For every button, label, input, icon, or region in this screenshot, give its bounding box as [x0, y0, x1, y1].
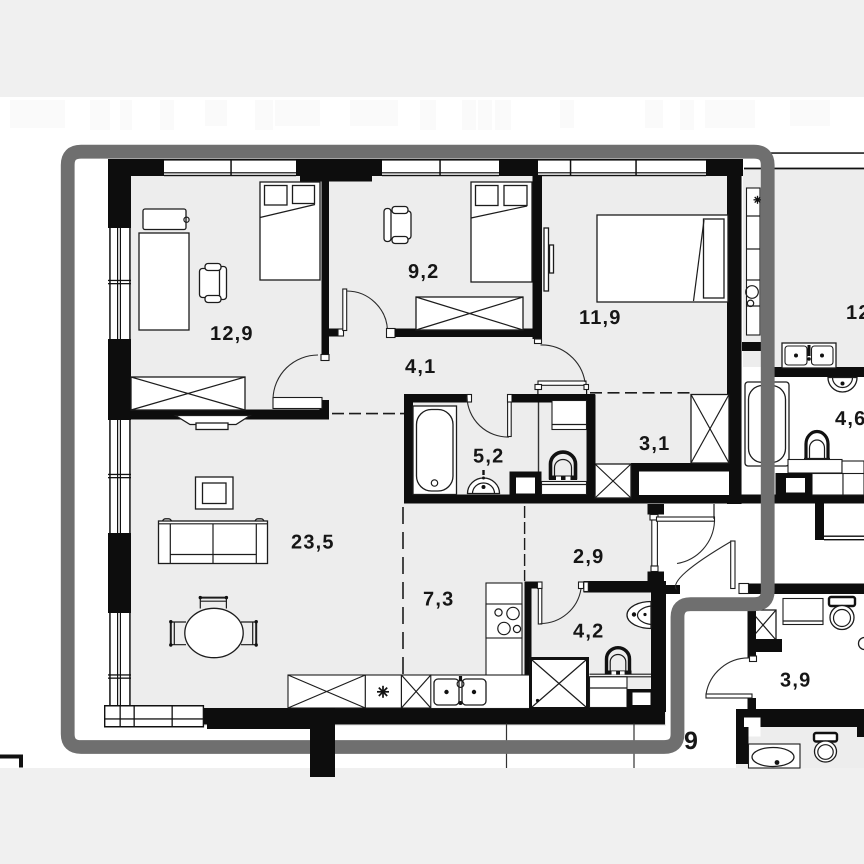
svg-text:23,5: 23,5: [291, 532, 335, 554]
svg-text:7,3: 7,3: [423, 589, 454, 611]
svg-text:9: 9: [684, 727, 699, 755]
svg-text:4,6: 4,6: [835, 408, 864, 430]
svg-text:9,2: 9,2: [408, 261, 439, 283]
svg-text:3,9: 3,9: [780, 670, 811, 692]
svg-text:4,1: 4,1: [405, 356, 436, 378]
svg-text:3,1: 3,1: [639, 433, 670, 455]
svg-text:12,9: 12,9: [210, 323, 254, 345]
svg-text:4,2: 4,2: [573, 621, 604, 643]
svg-text:12,: 12,: [846, 302, 864, 324]
svg-text:5,2: 5,2: [473, 446, 504, 468]
svg-text:2,9: 2,9: [573, 546, 604, 568]
svg-text:11,9: 11,9: [579, 307, 622, 329]
